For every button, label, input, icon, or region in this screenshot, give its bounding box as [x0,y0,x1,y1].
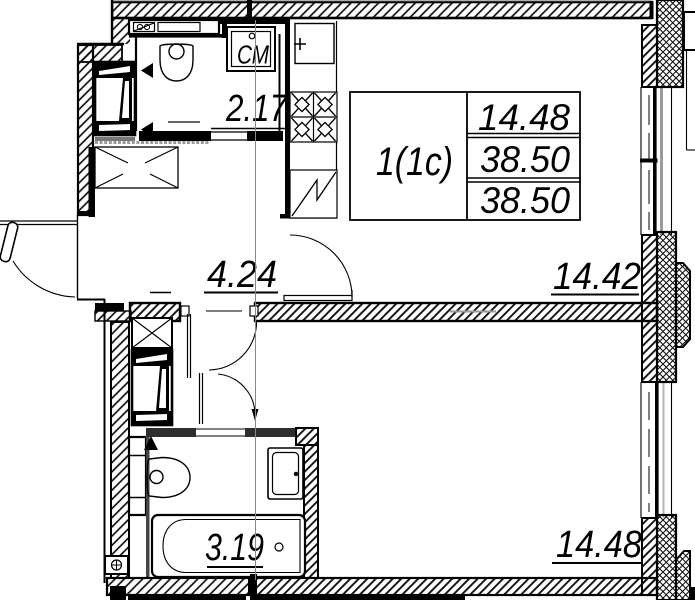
svg-text:СМ: СМ [237,40,269,70]
svg-text:38.50: 38.50 [480,180,570,221]
svg-text:1(1с): 1(1с) [376,140,453,184]
svg-text:38.50: 38.50 [480,139,570,180]
svg-text:4.24: 4.24 [207,254,277,296]
svg-text:14.48: 14.48 [478,97,570,138]
svg-text:14.42: 14.42 [553,256,641,298]
svg-text:14.48: 14.48 [556,524,642,566]
